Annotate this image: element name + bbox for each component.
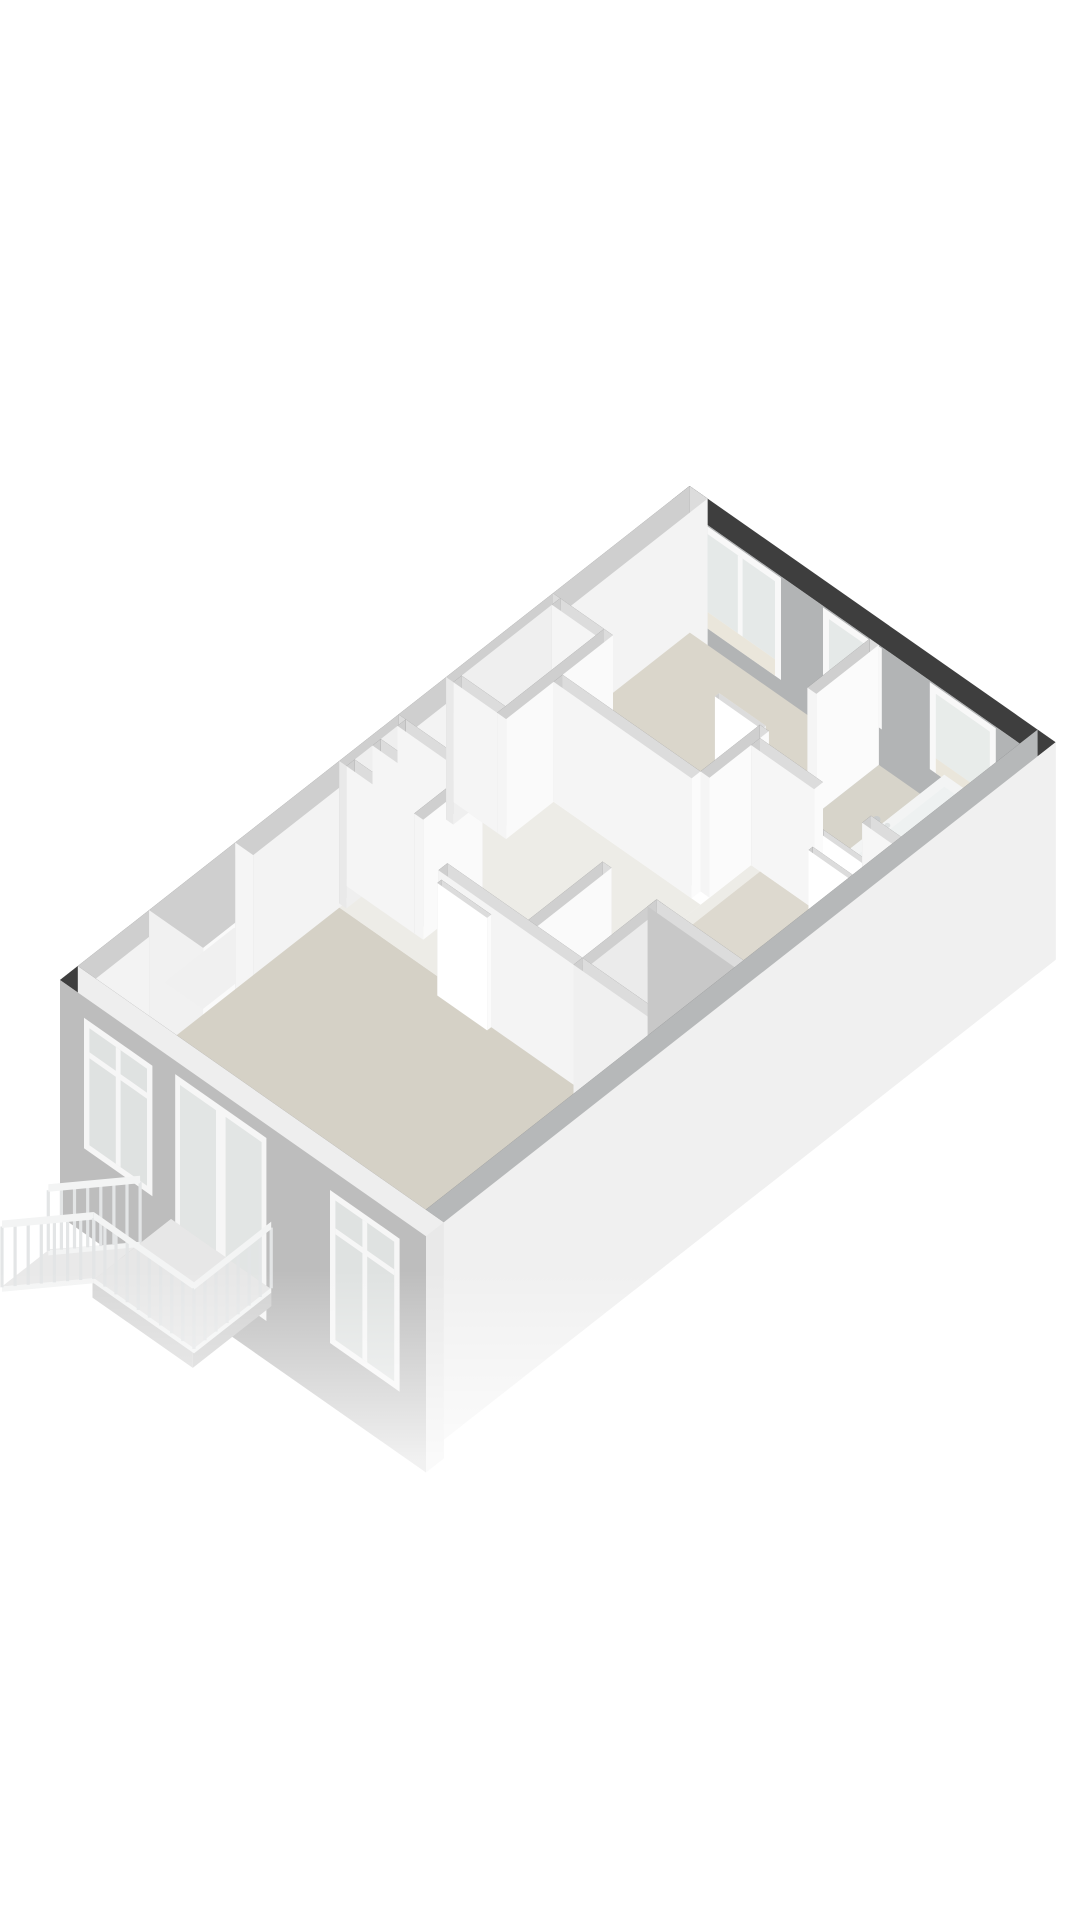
shaft1-lip-nx-face [446, 677, 453, 825]
bedroom-window-1-mullion [738, 555, 743, 636]
bedroom-south-wall-a-nx-face [701, 771, 710, 897]
shaft2-lip-nx-face [339, 761, 346, 909]
ground-fade [0, 1270, 1080, 1690]
living-door-leaf-py-face [487, 915, 491, 1031]
bedroom-left-wall-py-face [692, 771, 701, 898]
front-window-a-mullion [116, 1047, 121, 1167]
shaft1-back-wall-nx-face [497, 713, 506, 839]
floorplan-page [0, 0, 1080, 1920]
shaft2-back-wall-nx-face [414, 814, 423, 940]
floorplan-3d [0, 0, 1080, 1920]
